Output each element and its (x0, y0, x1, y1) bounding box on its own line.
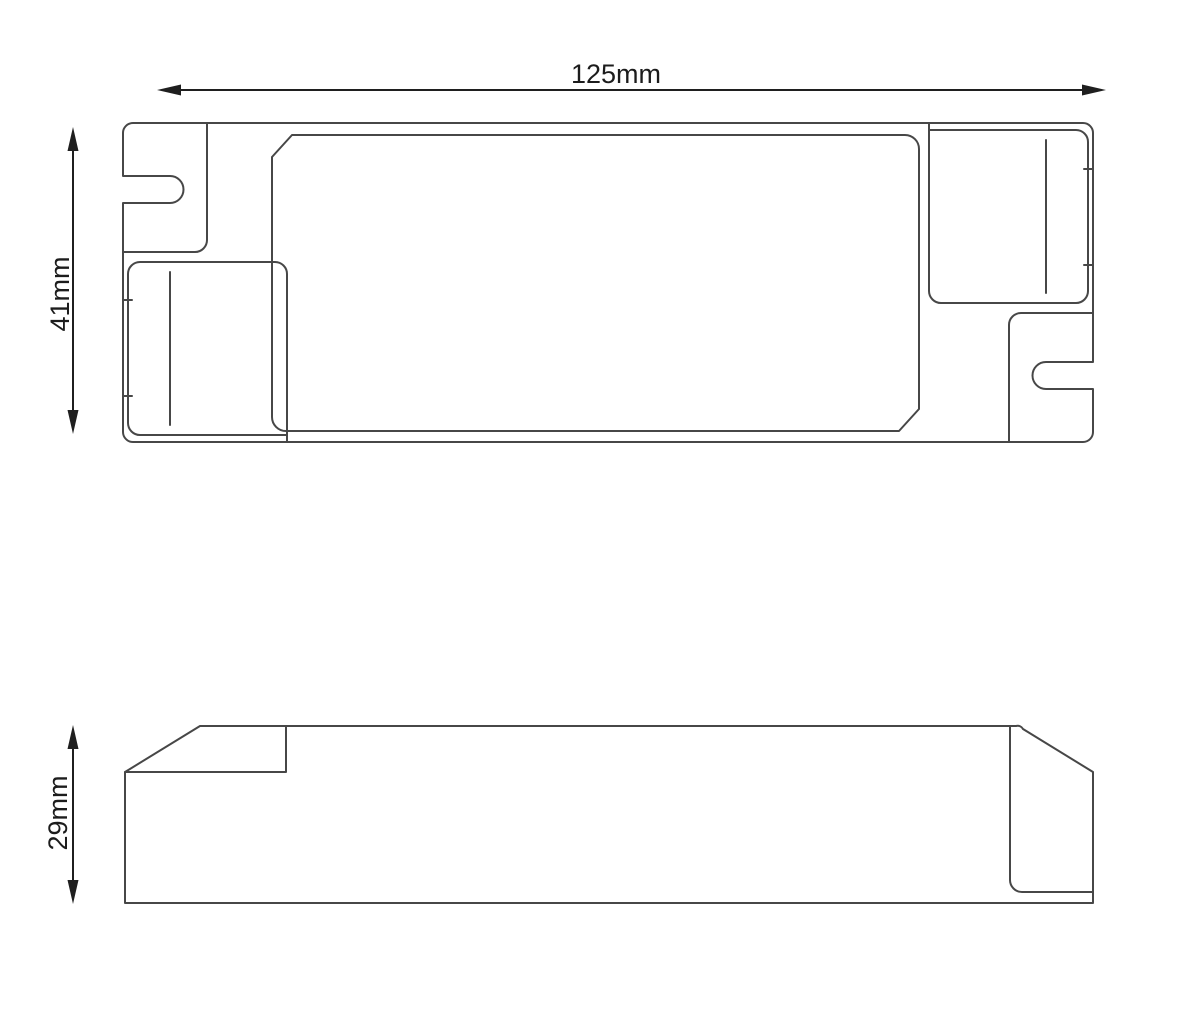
side-right-end-cap (1010, 726, 1093, 892)
length-arrowhead-left (157, 85, 181, 96)
side-view-outer-outline (125, 726, 1093, 903)
width-arrowhead-bottom (68, 410, 79, 434)
technical-drawing-canvas: 125mm 41mm 29mm (0, 0, 1200, 1010)
width-arrowhead-top (68, 127, 79, 151)
side-view (125, 726, 1093, 903)
right-terminal-block (929, 123, 1088, 303)
bottom-right-corner-section (1009, 313, 1093, 442)
side-left-end-step (125, 726, 286, 772)
top-left-corner-section (123, 123, 207, 252)
enclosure-dimension-drawing (0, 0, 1200, 1010)
cover-plate-outline (272, 135, 919, 431)
top-view (123, 123, 1093, 442)
height-dimension-label: 29mm (42, 738, 74, 888)
width-dimension-label: 41mm (44, 219, 76, 369)
top-view-outer-outline (123, 123, 1093, 442)
length-arrowhead-right (1082, 85, 1106, 96)
left-terminal-block (128, 262, 287, 442)
dimension-lines (68, 85, 1107, 905)
length-dimension-label: 125mm (541, 58, 691, 90)
